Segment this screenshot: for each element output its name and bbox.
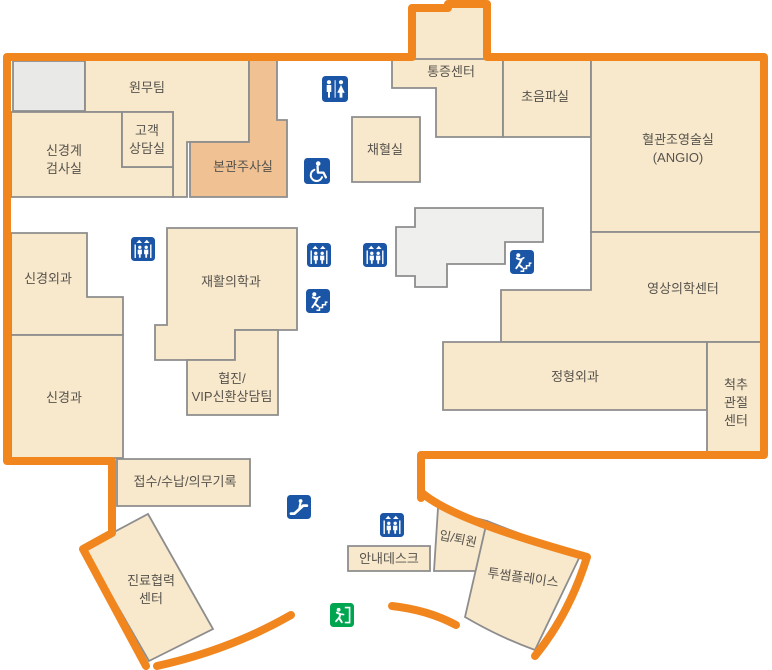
room-customer-consult-label: 고객 상담실 [129,122,165,158]
hospital-floor-map: 원무팀 신경계 검사실 고객 상담실 본관주사실 채혈실 통증센터 초음파실 혈… [0,0,772,670]
elevator-icon [380,513,404,537]
room-unlabeled-gray-shape [13,61,85,111]
floor-map-canvas [0,0,772,670]
room-blood-collection-label: 채혈실 [367,141,403,159]
room-top-annex-shape [412,4,487,59]
room-ultrasound-label: 초음파실 [521,88,569,106]
room-orthopedics-label: 정형외과 [551,368,599,386]
exit-icon [330,603,354,627]
stairs-icon [510,250,534,274]
room-imaging-center-label: 영상의학센터 [647,280,719,298]
central-core-shape [396,208,543,287]
room-neurosurgery-label: 신경외과 [24,270,72,288]
stairs-icon [306,289,330,313]
elevator-icon [307,243,331,267]
room-rehab-medicine-label: 재활의학과 [201,273,261,291]
room-main-injection-label: 본관주사실 [213,158,273,176]
entrance-arc-right [392,606,456,625]
elevator-icon [131,237,155,261]
escalator-icon [287,495,311,519]
room-admin-team-label: 원무팀 [129,79,165,97]
room-spine-joint-label: 척추 관절 센터 [724,376,748,430]
room-reception-label: 접수/수납/의무기록 [134,473,237,491]
room-imaging-center-shape [501,232,762,342]
wheelchair-icon [304,158,330,184]
room-neuro-exam-label: 신경계 검사실 [46,142,82,178]
restroom-icon [322,76,348,102]
room-angio-label: 혈관조영술실 (ANGIO) [642,131,714,167]
room-pain-center-label: 통증센터 [427,63,475,81]
room-referral-center-label: 진료협력 센터 [127,572,175,608]
room-vip-consult-label: 협진/ VIP신환상담팀 [192,370,273,406]
elevator-icon [363,243,387,267]
room-neurology-label: 신경과 [46,389,82,407]
room-info-desk-label: 안내데스크 [359,552,419,566]
